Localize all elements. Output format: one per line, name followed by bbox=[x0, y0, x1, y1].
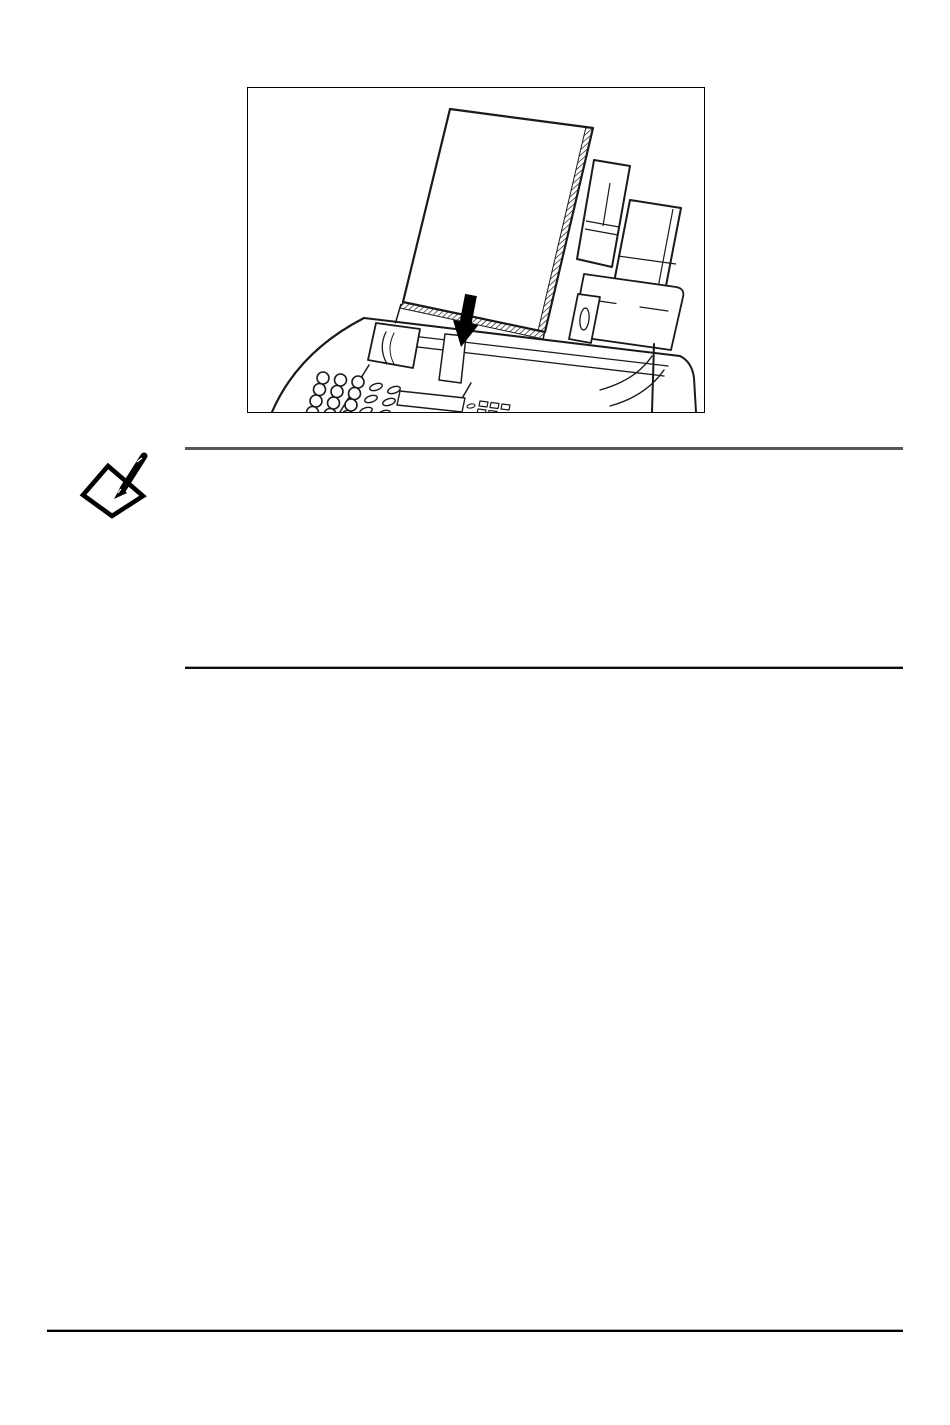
note-section-top-rule bbox=[185, 447, 903, 450]
paper-stack-drawing bbox=[394, 109, 593, 354]
note-section-bottom-rule bbox=[185, 666, 903, 669]
fax-machine-illustration bbox=[248, 88, 704, 412]
page-footer-rule bbox=[47, 1329, 903, 1332]
manual-page bbox=[0, 0, 950, 1425]
note-pencil-icon bbox=[76, 449, 150, 519]
illustration-frame bbox=[247, 87, 705, 413]
